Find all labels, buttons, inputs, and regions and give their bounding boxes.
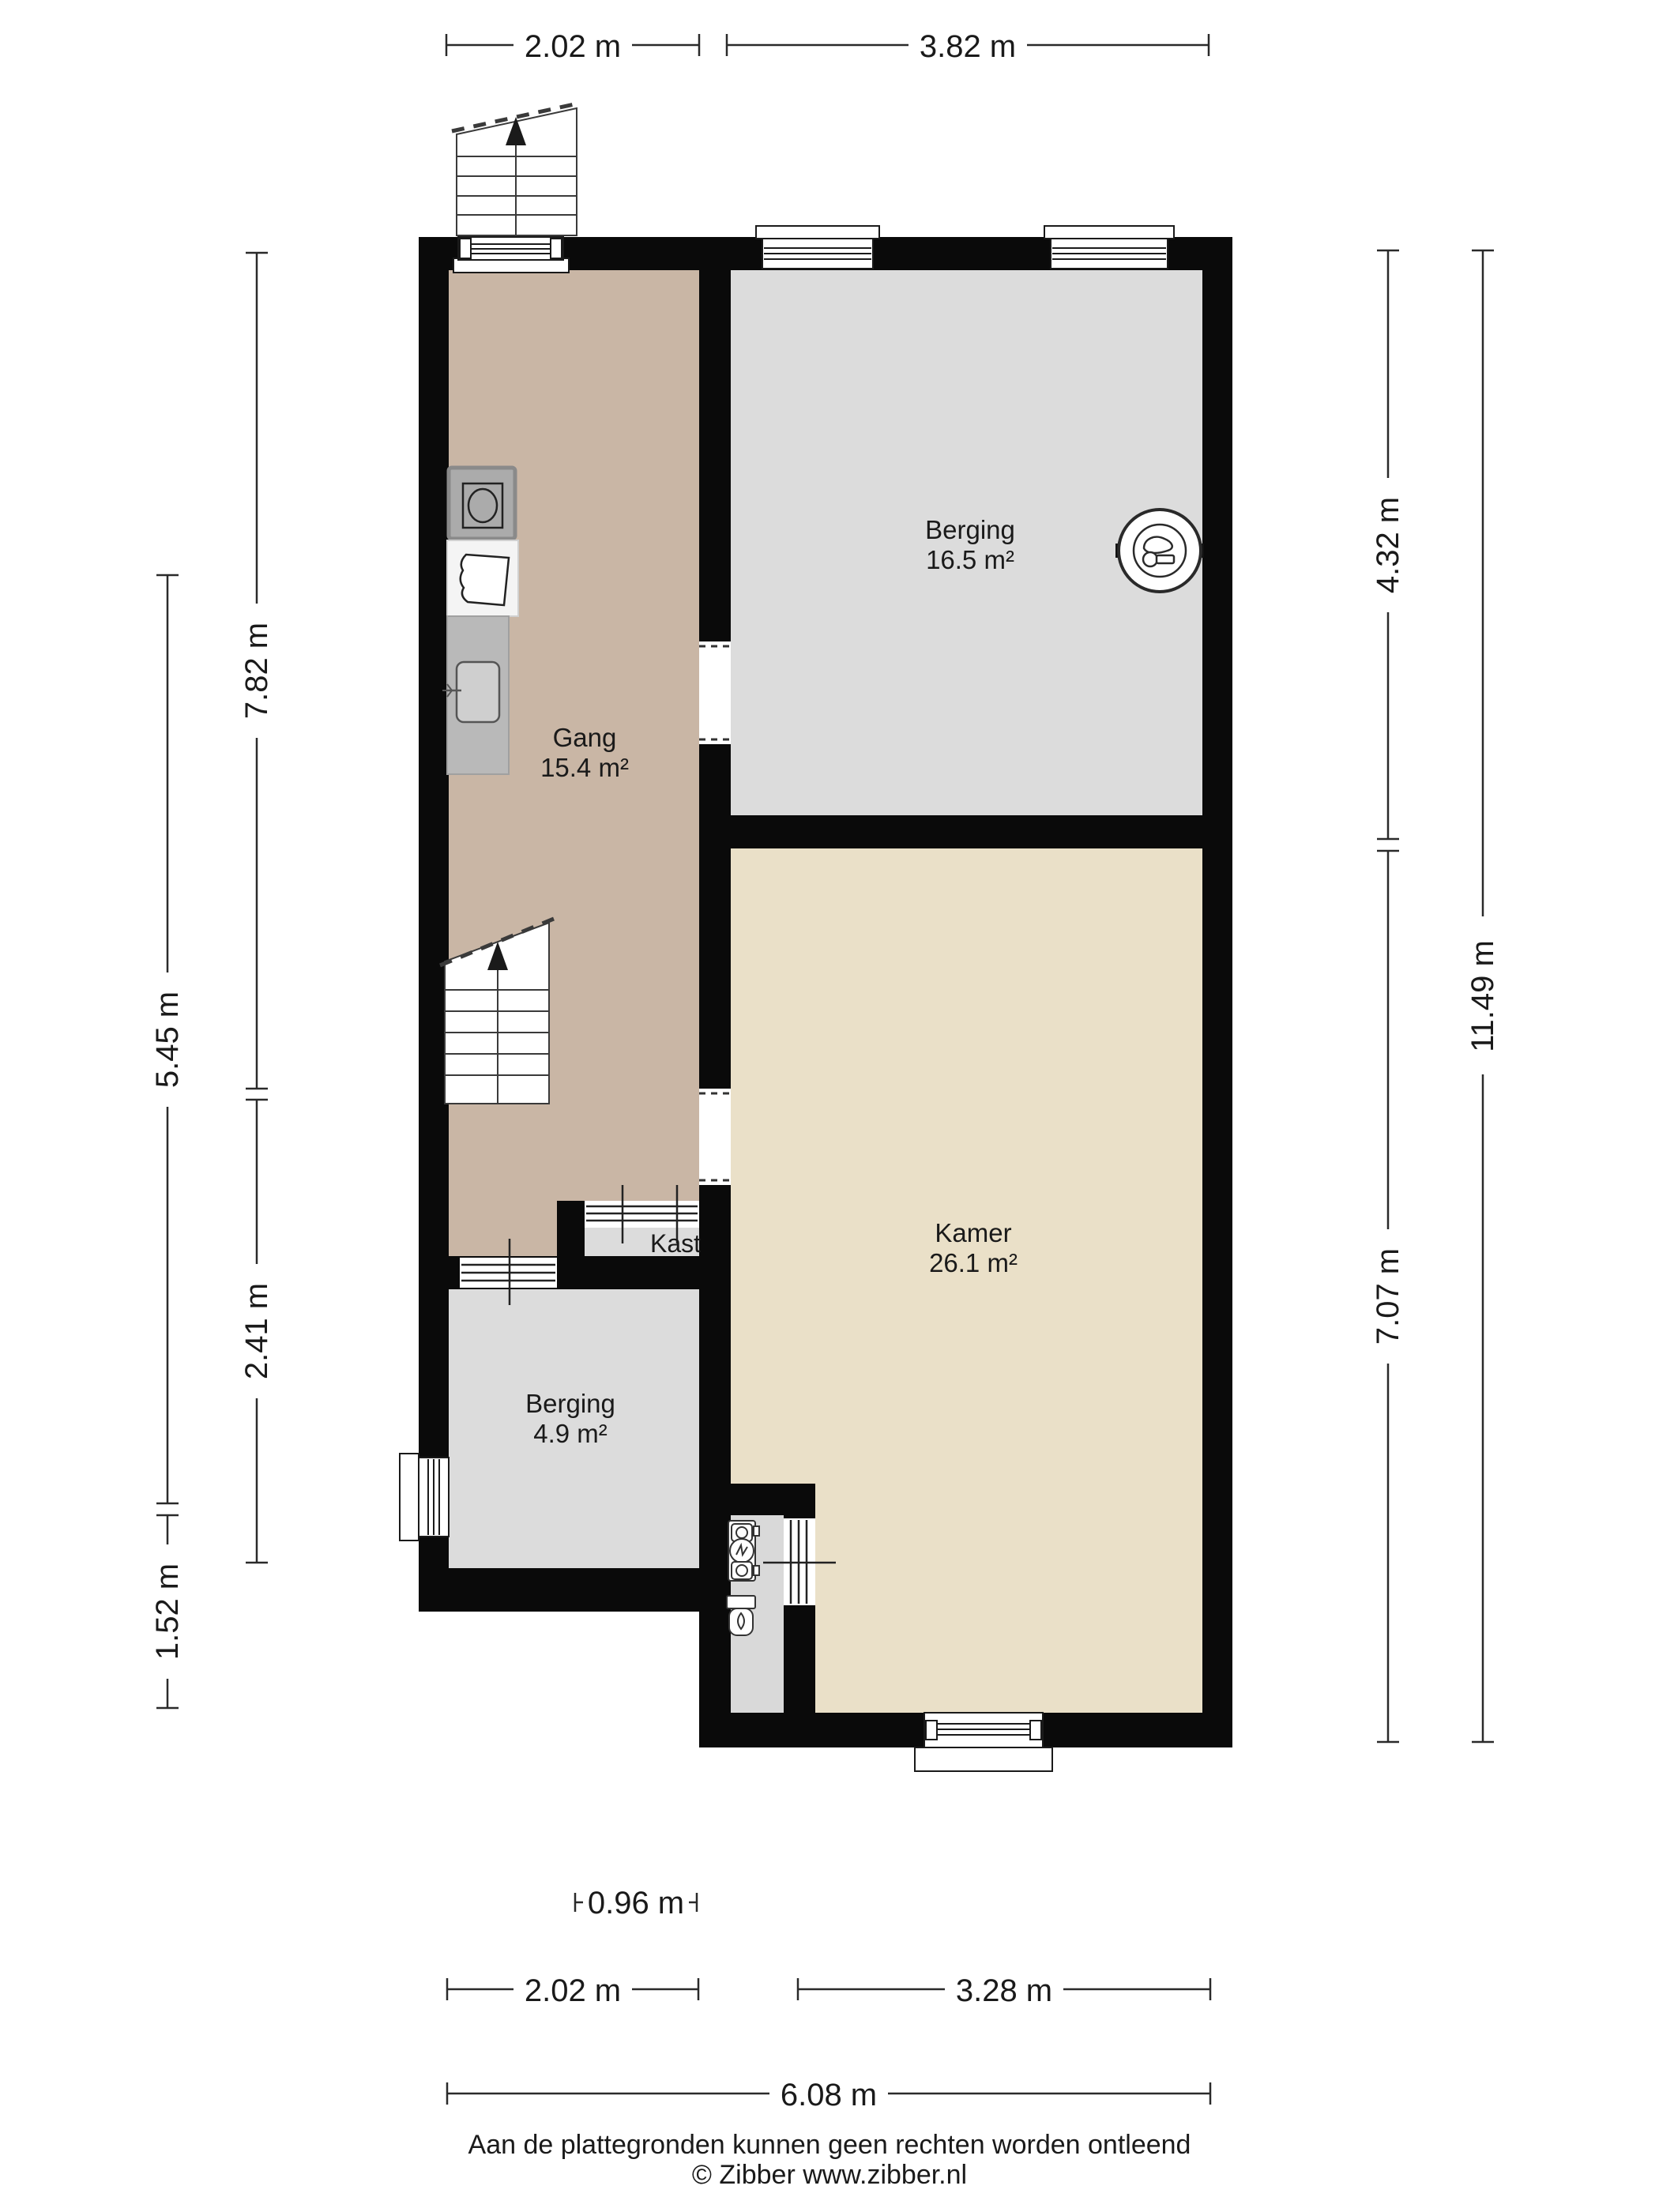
berging-top-name: Berging bbox=[925, 515, 1015, 544]
berging-bottom-name: Berging bbox=[525, 1389, 615, 1418]
floorplan-canvas: Berging 16.5 m² Gang 15.4 m² Kamer 26.1 … bbox=[0, 0, 1659, 2212]
window-post bbox=[926, 1721, 937, 1740]
washing-machine-icon bbox=[449, 468, 515, 539]
window-post bbox=[460, 239, 471, 258]
sink-icon bbox=[457, 662, 499, 722]
berging-bottom-area: 4.9 m² bbox=[533, 1419, 608, 1448]
room-floors bbox=[449, 270, 1202, 1713]
dim-label-top-gang: 2.02 m bbox=[525, 29, 621, 64]
wall-right bbox=[1202, 237, 1232, 1747]
dim-label-bottom-kast: 0.96 m bbox=[588, 1886, 684, 1920]
dim-top-gang: 2.02 m bbox=[446, 27, 699, 64]
door-opening bbox=[699, 1089, 731, 1185]
window-sill bbox=[915, 1747, 1052, 1771]
footer: Aan de plattegronden kunnen geen rechten… bbox=[468, 2130, 1191, 2190]
door-gang-kamer bbox=[699, 1089, 731, 1185]
window-post bbox=[551, 239, 562, 258]
footer-copyright: © Zibber www.zibber.nl bbox=[692, 2160, 967, 2190]
gang-area: 15.4 m² bbox=[540, 753, 629, 782]
dim-label-bottom-kamer: 3.28 m bbox=[956, 1973, 1052, 2008]
exterior-stairs bbox=[452, 103, 581, 235]
toilet-icon bbox=[727, 1596, 755, 1635]
small-basin-icon bbox=[447, 540, 518, 616]
window-left-berging-bottom bbox=[400, 1454, 449, 1540]
dim-left-mid: 5.45 m bbox=[147, 575, 188, 1503]
berging-top-area: 16.5 m² bbox=[926, 545, 1014, 574]
gang-name: Gang bbox=[553, 723, 617, 752]
wall-bathroom-top bbox=[699, 1484, 815, 1515]
dim-label-left-upper: 7.82 m bbox=[239, 623, 274, 719]
wall-berging-bottom bbox=[419, 1568, 699, 1612]
dim-label-right-kamer: 7.07 m bbox=[1371, 1248, 1405, 1345]
window-sill bbox=[400, 1454, 419, 1540]
kamer-name: Kamer bbox=[935, 1218, 1011, 1247]
wall-berging-kamer bbox=[699, 815, 1202, 848]
dim-label-right-berging: 4.32 m bbox=[1371, 497, 1405, 593]
dim-label-right-total: 11.49 m bbox=[1465, 940, 1500, 1052]
dim-bottom-kast: 0.96 m bbox=[575, 1883, 697, 1920]
dim-label-left-lower: 1.52 m bbox=[150, 1563, 185, 1660]
dim-right-total: 11.49 m bbox=[1462, 250, 1503, 1742]
dim-label-left-berging: 2.41 m bbox=[239, 1283, 274, 1379]
footer-disclaimer: Aan de plattegronden kunnen geen rechten… bbox=[468, 2130, 1191, 2160]
door-gang-berging-top bbox=[699, 641, 731, 744]
dim-label-top-berging: 3.82 m bbox=[920, 29, 1016, 64]
dim-label-bottom-total: 6.08 m bbox=[781, 2078, 877, 2112]
dim-label-bottom-gang: 2.02 m bbox=[525, 1973, 621, 2008]
door-opening bbox=[699, 641, 731, 744]
dim-left-upper: 7.82 m bbox=[236, 253, 277, 1089]
dim-left-lower: 1.52 m bbox=[147, 1515, 188, 1708]
boiler-icon bbox=[1115, 510, 1204, 592]
window-post bbox=[1030, 1721, 1041, 1740]
dim-label-left-mid: 5.45 m bbox=[150, 991, 185, 1088]
dim-top-berging: 3.82 m bbox=[727, 27, 1209, 64]
dim-right-berging: 4.32 m bbox=[1367, 250, 1409, 839]
dim-bottom-gang: 2.02 m bbox=[447, 1971, 698, 2008]
window-top-berging-2 bbox=[1044, 226, 1174, 269]
dim-left-berging: 2.41 m bbox=[236, 1100, 277, 1563]
kamer-area: 26.1 m² bbox=[929, 1248, 1018, 1277]
bathroom-sink-icon bbox=[728, 1521, 759, 1581]
kast-name: Kast bbox=[650, 1229, 701, 1258]
dim-bottom-kamer: 3.28 m bbox=[798, 1971, 1210, 2008]
window-bottom-kamer bbox=[915, 1713, 1052, 1771]
kitchen-counter bbox=[442, 616, 509, 774]
dim-bottom-total: 6.08 m bbox=[447, 2075, 1210, 2112]
window-sill bbox=[756, 226, 879, 239]
floorplan-page: Berging 16.5 m² Gang 15.4 m² Kamer 26.1 … bbox=[0, 0, 1659, 2212]
window-sill bbox=[1044, 226, 1174, 239]
dim-right-kamer: 7.07 m bbox=[1367, 851, 1409, 1742]
wall-left bbox=[419, 237, 449, 1612]
entry-window-top-gang bbox=[453, 237, 569, 273]
window-top-berging-1 bbox=[756, 226, 879, 269]
